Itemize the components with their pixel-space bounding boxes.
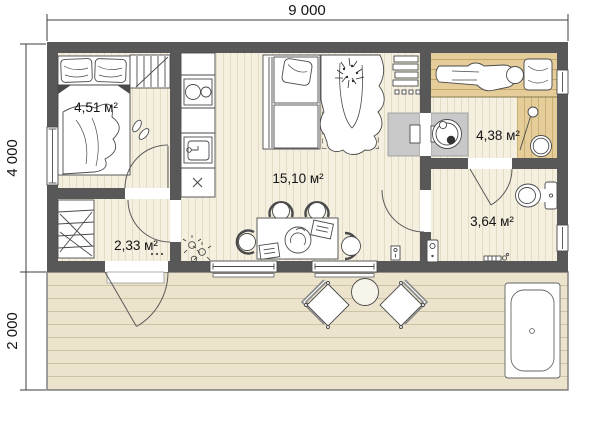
double-bed — [58, 56, 130, 175]
window-left — [47, 127, 58, 185]
wardrobe — [130, 55, 170, 88]
entrance-step — [107, 272, 164, 283]
blanket-throw — [320, 55, 384, 155]
ladle — [528, 107, 538, 117]
sauna-stove — [388, 113, 468, 156]
sauna-pillow — [524, 59, 552, 90]
water-heater — [427, 240, 438, 262]
window-living-1 — [210, 261, 277, 277]
floor-plan-drawing: 9 000 4 000 2 000 4,51 м² 2,33 м² 15,10 … — [0, 0, 600, 424]
hall-area-label: 2,33 м² — [114, 238, 158, 253]
kitchen-counter — [181, 53, 215, 197]
dimension-terrace-depth-label: 2 000 — [4, 312, 21, 350]
cooktop — [184, 79, 212, 105]
terrace-deck — [47, 272, 568, 390]
storage-closet — [58, 200, 94, 258]
living-area-label: 15,10 м² — [272, 171, 324, 186]
sofa-bed — [263, 55, 320, 149]
dimension-width-label: 9 000 — [288, 2, 326, 19]
floor-plan-page: 9 000 4 000 2 000 4,51 м² 2,33 м² 15,10 … — [0, 0, 600, 424]
place-setting — [259, 243, 280, 260]
doormat-dots — [151, 253, 163, 255]
bedroom-area-label: 4,51 м² — [74, 100, 118, 115]
deck-table — [352, 279, 379, 306]
window-bathroom — [557, 225, 568, 251]
bathroom-area-label: 3,64 м² — [470, 214, 514, 229]
hot-tub — [505, 283, 560, 378]
window-sauna — [557, 70, 568, 94]
sauna-area-label: 4,38 м² — [476, 128, 520, 143]
dimension-house-depth-label: 4 000 — [4, 139, 21, 177]
window-living-2 — [312, 261, 377, 277]
fruit-bowl — [285, 227, 311, 253]
kitchen-sink — [184, 137, 212, 163]
light-switch-panel — [391, 246, 400, 260]
